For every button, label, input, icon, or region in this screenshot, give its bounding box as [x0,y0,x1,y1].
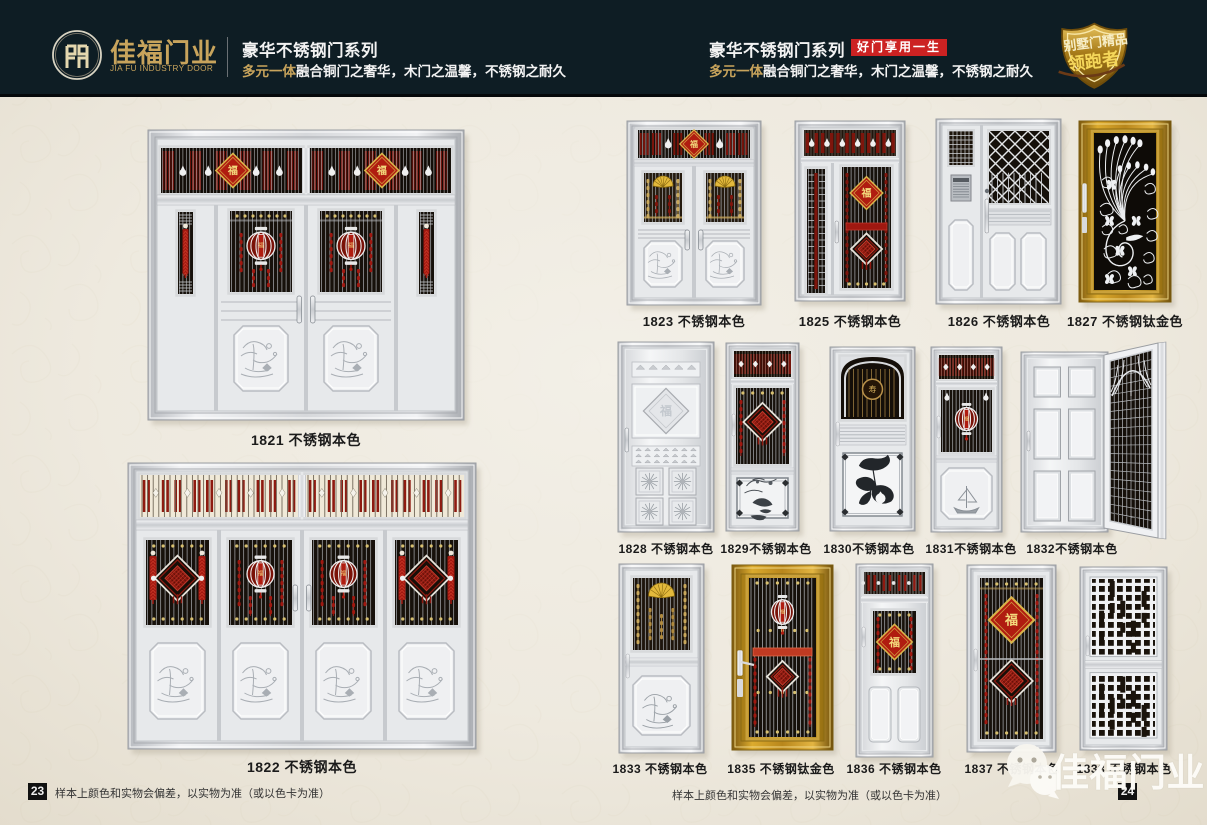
svg-text:福: 福 [348,241,354,249]
svg-text:福: 福 [659,403,672,418]
svg-text:福: 福 [376,164,387,177]
svg-text:福: 福 [861,187,872,200]
svg-text:福: 福 [780,609,785,616]
svg-text:福: 福 [888,635,900,649]
svg-text:福: 福 [1004,613,1018,628]
svg-text:福: 福 [964,416,969,423]
svg-text:福: 福 [340,570,346,578]
svg-text:寿: 寿 [869,384,877,394]
svg-text:福: 福 [227,164,238,177]
svg-text:福: 福 [258,241,264,249]
svg-text:福: 福 [689,139,698,149]
svg-text:福: 福 [257,570,263,578]
